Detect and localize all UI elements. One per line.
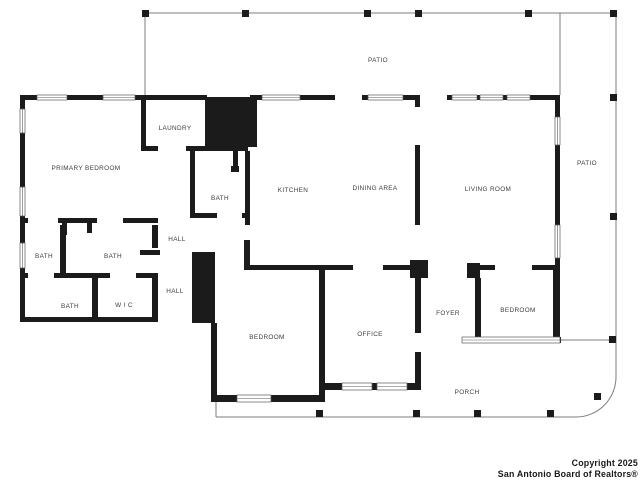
- room-label-living-room: LIVING ROOM: [465, 186, 511, 193]
- interior-walls: [20, 95, 561, 402]
- floor-plan-drawing: PATIO PATIO PRIMARY BEDROOM LAUNDRY BATH…: [0, 0, 640, 480]
- room-label-patio-right: PATIO: [577, 160, 597, 167]
- room-label-hall-upper: HALL: [168, 236, 185, 243]
- room-label-hall-lower: HALL: [166, 288, 183, 295]
- room-label-office: OFFICE: [357, 331, 383, 338]
- floor-plan-page: PATIO PATIO PRIMARY BEDROOM LAUNDRY BATH…: [0, 0, 640, 480]
- room-label-wic: W I C: [115, 302, 133, 309]
- copyright-line2: San Antonio Board of Realtors®: [498, 469, 639, 479]
- room-label-foyer: FOYER: [436, 310, 460, 317]
- room-label-dining-area: DINING AREA: [352, 185, 397, 192]
- room-label-bedroom-center: BEDROOM: [249, 334, 284, 341]
- room-label-bath-left: BATH: [35, 253, 53, 260]
- room-label-laundry: LAUNDRY: [159, 125, 192, 132]
- room-labels: PATIO PATIO PRIMARY BEDROOM LAUNDRY BATH…: [35, 57, 597, 396]
- copyright-notice: Copyright 2025 San Antonio Board of Real…: [498, 458, 639, 479]
- room-label-bath-primary: BATH: [211, 195, 229, 202]
- room-label-patio-top: PATIO: [368, 57, 388, 64]
- room-label-bath-lower: BATH: [61, 303, 79, 310]
- room-label-bath-middle: BATH: [104, 253, 122, 260]
- copyright-line1: Copyright 2025: [572, 458, 638, 468]
- windows: [20, 95, 560, 402]
- room-label-kitchen: KITCHEN: [278, 187, 309, 194]
- room-label-porch: PORCH: [455, 389, 480, 396]
- room-label-primary-bedroom: PRIMARY BEDROOM: [52, 165, 121, 172]
- room-label-bedroom-right: BEDROOM: [500, 307, 535, 314]
